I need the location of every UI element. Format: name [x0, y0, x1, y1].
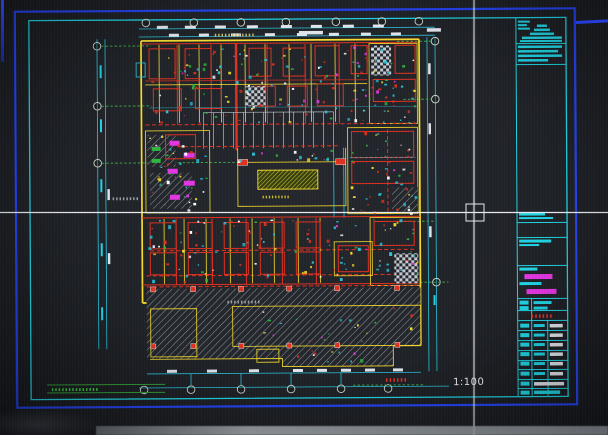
title-block-notes: [518, 20, 564, 310]
title-block-company: ▮▮▮▮▮▮: [531, 313, 553, 319]
courtyard: ▮▮▮▮▮▮▮▮▮: [238, 148, 346, 219]
axis-bubbles-bottom: [140, 385, 392, 394]
desk-reflection-strip: [96, 426, 608, 435]
bottom-left-note: ▮▮▮▮▮▮▮▮▮▮▮▮▮▮: [51, 387, 99, 393]
title-block: ▮▮▮▮▮▮: [516, 17, 568, 396]
courtyard-label: ▮▮▮▮▮▮▮▮▮: [262, 195, 290, 200]
screen-edge-line-left: [1, 0, 4, 62]
hall-label: ▮▮▮▮▮▮▮▮▮▮: [227, 299, 261, 305]
bottom-red-stamp: ▮▮▮▮▮▮: [385, 377, 407, 383]
floor-plan: ▮▮▮▮▮▮▮▮▮: [136, 39, 421, 367]
drawing-title-top: ▮▮▮▮▮▮▮▮▮▮▮▮: [214, 32, 255, 38]
cad-canvas[interactable]: ▮▮▮▮▮▮▮▮▮: [0, 0, 608, 435]
left-margin-note: ▮▮▮▮▮▮▮▮: [112, 196, 139, 202]
dim-text-top: [157, 24, 401, 36]
dim-text-bottom: [167, 368, 403, 372]
scale-label: 1:100: [453, 377, 484, 388]
mid-left-block: [146, 131, 210, 213]
photo-corner-shadow: [0, 409, 96, 435]
bottom-hall: ▮▮▮▮▮▮▮▮▮▮: [146, 285, 420, 367]
title-block-table: [520, 323, 564, 394]
photographed-screen: ▮▮▮▮▮▮▮▮▮: [0, 0, 608, 435]
